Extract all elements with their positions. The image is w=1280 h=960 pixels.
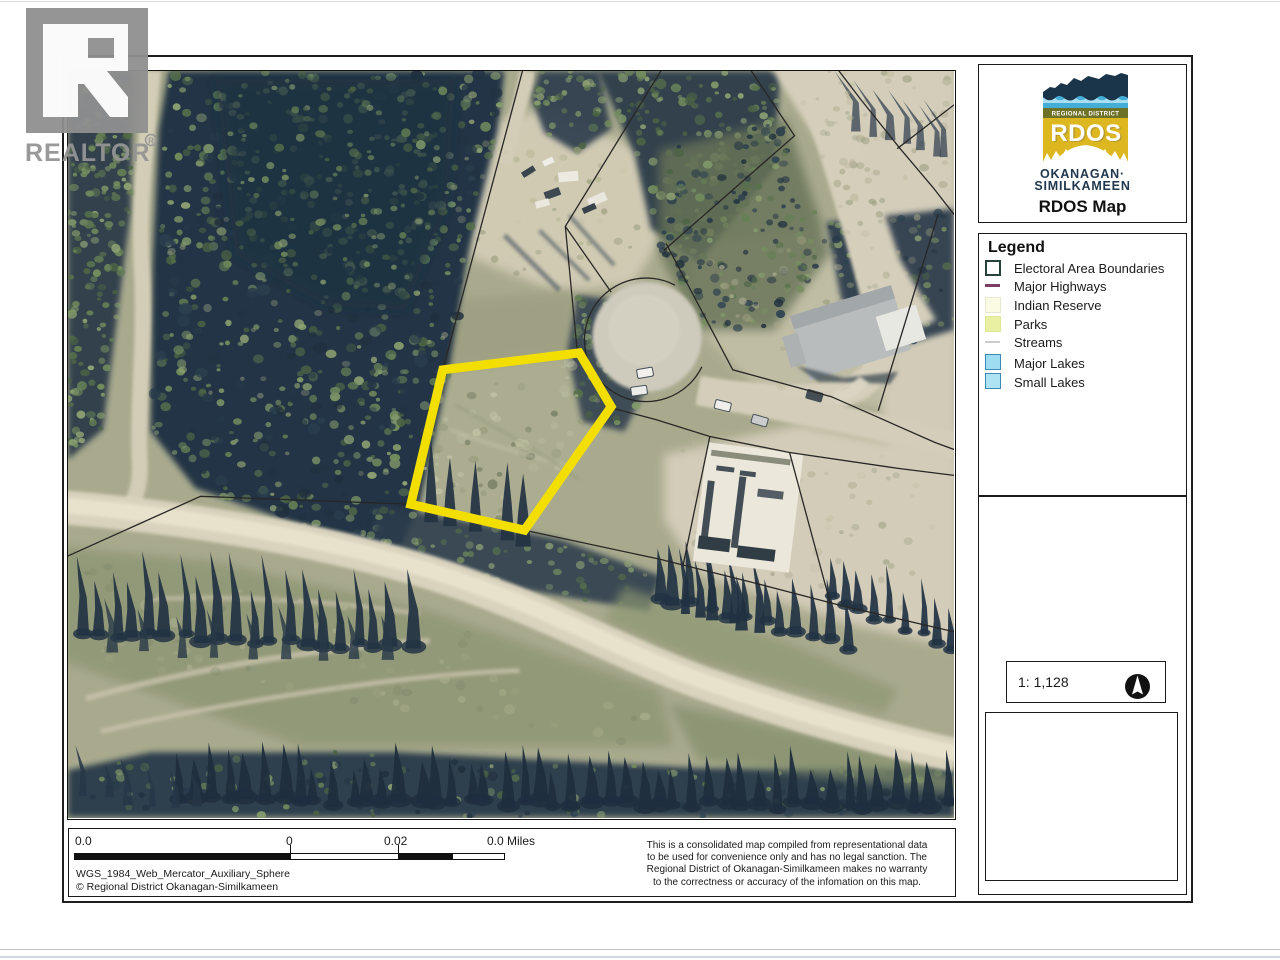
svg-text:REALTOR: REALTOR (25, 139, 151, 167)
svg-text:R: R (148, 137, 154, 146)
svg-text:RDOS: RDOS (1050, 120, 1121, 147)
svg-text:REGIONAL DISTRICT: REGIONAL DISTRICT (1052, 112, 1120, 118)
